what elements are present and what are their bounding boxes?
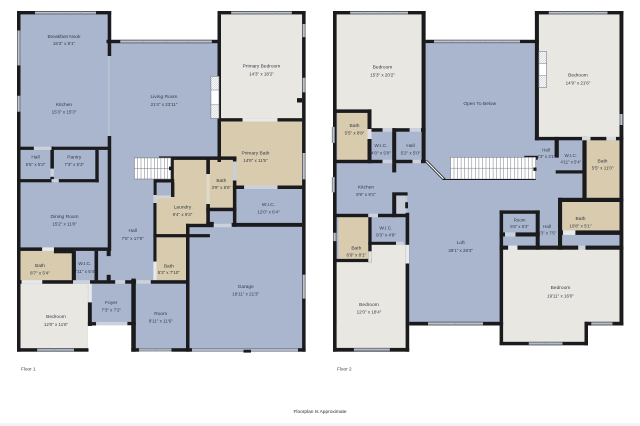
svg-text:15'3" x 8'1": 15'3" x 8'1"	[53, 41, 76, 46]
svg-text:5'2" x 5'0": 5'2" x 5'0"	[401, 151, 421, 156]
svg-text:Garage: Garage	[238, 284, 254, 290]
svg-text:Primary Bath: Primary Bath	[242, 150, 270, 156]
svg-text:W.I.C.: W.I.C.	[565, 153, 578, 158]
svg-text:5'5" x 8'8": 5'5" x 8'8"	[345, 130, 365, 135]
svg-text:19'11" x 16'0": 19'11" x 16'0"	[547, 293, 574, 298]
svg-text:Foyer: Foyer	[105, 300, 118, 306]
svg-text:Pantry: Pantry	[67, 154, 82, 160]
svg-text:19'11" x 21'3": 19'11" x 21'3"	[232, 292, 259, 297]
svg-text:7'3" x 5'3": 7'3" x 5'3"	[64, 162, 84, 167]
svg-text:5'3" x 7'10": 5'3" x 7'10"	[158, 270, 181, 275]
svg-text:Floorplan Is Approximate: Floorplan Is Approximate	[293, 409, 346, 415]
svg-text:15'3" x 20'2": 15'3" x 20'2"	[370, 73, 395, 78]
svg-text:Bedroom: Bedroom	[46, 314, 66, 320]
svg-text:W.I.C.: W.I.C.	[262, 202, 275, 208]
svg-text:Bath: Bath	[35, 263, 45, 269]
svg-text:12'0" x 6'4": 12'0" x 6'4"	[257, 210, 280, 215]
svg-text:15'2" x 11'8": 15'2" x 11'8"	[52, 222, 77, 227]
svg-text:Laundry: Laundry	[174, 204, 192, 210]
svg-text:Bath: Bath	[351, 246, 361, 252]
svg-text:W.I.C.: W.I.C.	[374, 143, 387, 149]
svg-text:8'7" x 5'4": 8'7" x 5'4"	[30, 271, 50, 276]
svg-text:9'3" x 4'9": 9'3" x 4'9"	[376, 233, 396, 238]
svg-text:Bedroom: Bedroom	[359, 302, 379, 308]
svg-text:Hall: Hall	[542, 148, 550, 153]
svg-text:12'0" x 11'6": 12'0" x 11'6"	[44, 322, 69, 327]
svg-text:Bath: Bath	[350, 123, 360, 129]
svg-text:21'4" x 23'11": 21'4" x 23'11"	[151, 102, 178, 107]
svg-text:Breakfast Nook: Breakfast Nook	[47, 34, 81, 40]
svg-text:28'1" x 28'3": 28'1" x 28'3"	[448, 248, 473, 253]
svg-text:14'3" x 18'2": 14'3" x 18'2"	[249, 72, 274, 77]
svg-text:5'5" x 5'3": 5'5" x 5'3"	[510, 224, 529, 229]
svg-text:Kitchen: Kitchen	[56, 102, 72, 108]
svg-text:Loft: Loft	[457, 240, 466, 246]
svg-text:5'5" x 5'3": 5'5" x 5'3"	[26, 162, 46, 167]
svg-text:Floor 1: Floor 1	[21, 366, 36, 371]
svg-text:9'9" x 9'1": 9'9" x 9'1"	[356, 192, 376, 197]
svg-text:14'9" x 21'6": 14'9" x 21'6"	[566, 80, 591, 85]
svg-text:9'4" x 9'3": 9'4" x 9'3"	[173, 212, 193, 217]
svg-text:Primary Bedroom: Primary Bedroom	[243, 64, 281, 70]
svg-text:3'9" x 8'6": 3'9" x 8'6"	[211, 185, 231, 190]
svg-text:Bedroom: Bedroom	[373, 65, 393, 71]
svg-text:Bedroom: Bedroom	[551, 285, 571, 291]
svg-text:Floor 2: Floor 2	[337, 366, 352, 371]
svg-text:4'0" x 5'0": 4'0" x 5'0"	[371, 151, 391, 156]
svg-text:Bath: Bath	[216, 178, 226, 184]
svg-text:W.I.C.: W.I.C.	[379, 225, 392, 231]
svg-text:12'0" x 18'4": 12'0" x 18'4"	[357, 309, 382, 314]
svg-text:Hall: Hall	[31, 154, 39, 160]
svg-text:15'3" x 15'3": 15'3" x 15'3"	[52, 109, 77, 114]
svg-text:Room: Room	[154, 311, 167, 317]
svg-text:4'3" x 7'5": 4'3" x 7'5"	[538, 230, 557, 235]
svg-text:4'3" x 3'1": 4'3" x 3'1"	[537, 154, 556, 159]
svg-text:Hall: Hall	[543, 224, 551, 229]
svg-text:6'9" x 8'1": 6'9" x 8'1"	[346, 253, 366, 258]
svg-text:Kitchen: Kitchen	[358, 185, 374, 191]
svg-text:Bath: Bath	[576, 216, 586, 222]
svg-text:Bath: Bath	[164, 263, 174, 269]
svg-text:4'11" x 5'4": 4'11" x 5'4"	[560, 159, 581, 164]
svg-text:14'9" x 11'5": 14'9" x 11'5"	[243, 158, 268, 163]
svg-text:2'11" x 5'4": 2'11" x 5'4"	[74, 269, 96, 274]
svg-text:Dining Room: Dining Room	[51, 214, 79, 220]
svg-text:Room: Room	[514, 218, 526, 223]
svg-text:Hall: Hall	[129, 228, 137, 234]
svg-text:5'5" x 11'0": 5'5" x 11'0"	[592, 166, 614, 171]
svg-text:Bedroom: Bedroom	[568, 72, 588, 78]
svg-text:10'8" x 5'1": 10'8" x 5'1"	[569, 224, 592, 229]
svg-text:Living Room: Living Room	[151, 94, 178, 100]
svg-text:Bath: Bath	[598, 158, 608, 164]
svg-text:W.I.C.: W.I.C.	[78, 261, 91, 267]
svg-text:7'3" x 7'2": 7'3" x 7'2"	[101, 308, 121, 313]
svg-text:8'11" x 11'6": 8'11" x 11'6"	[149, 319, 173, 324]
svg-text:Hall: Hall	[406, 143, 414, 149]
svg-text:7'6" x 17'9": 7'6" x 17'9"	[122, 236, 145, 241]
svg-text:Open To Below: Open To Below	[463, 101, 496, 107]
